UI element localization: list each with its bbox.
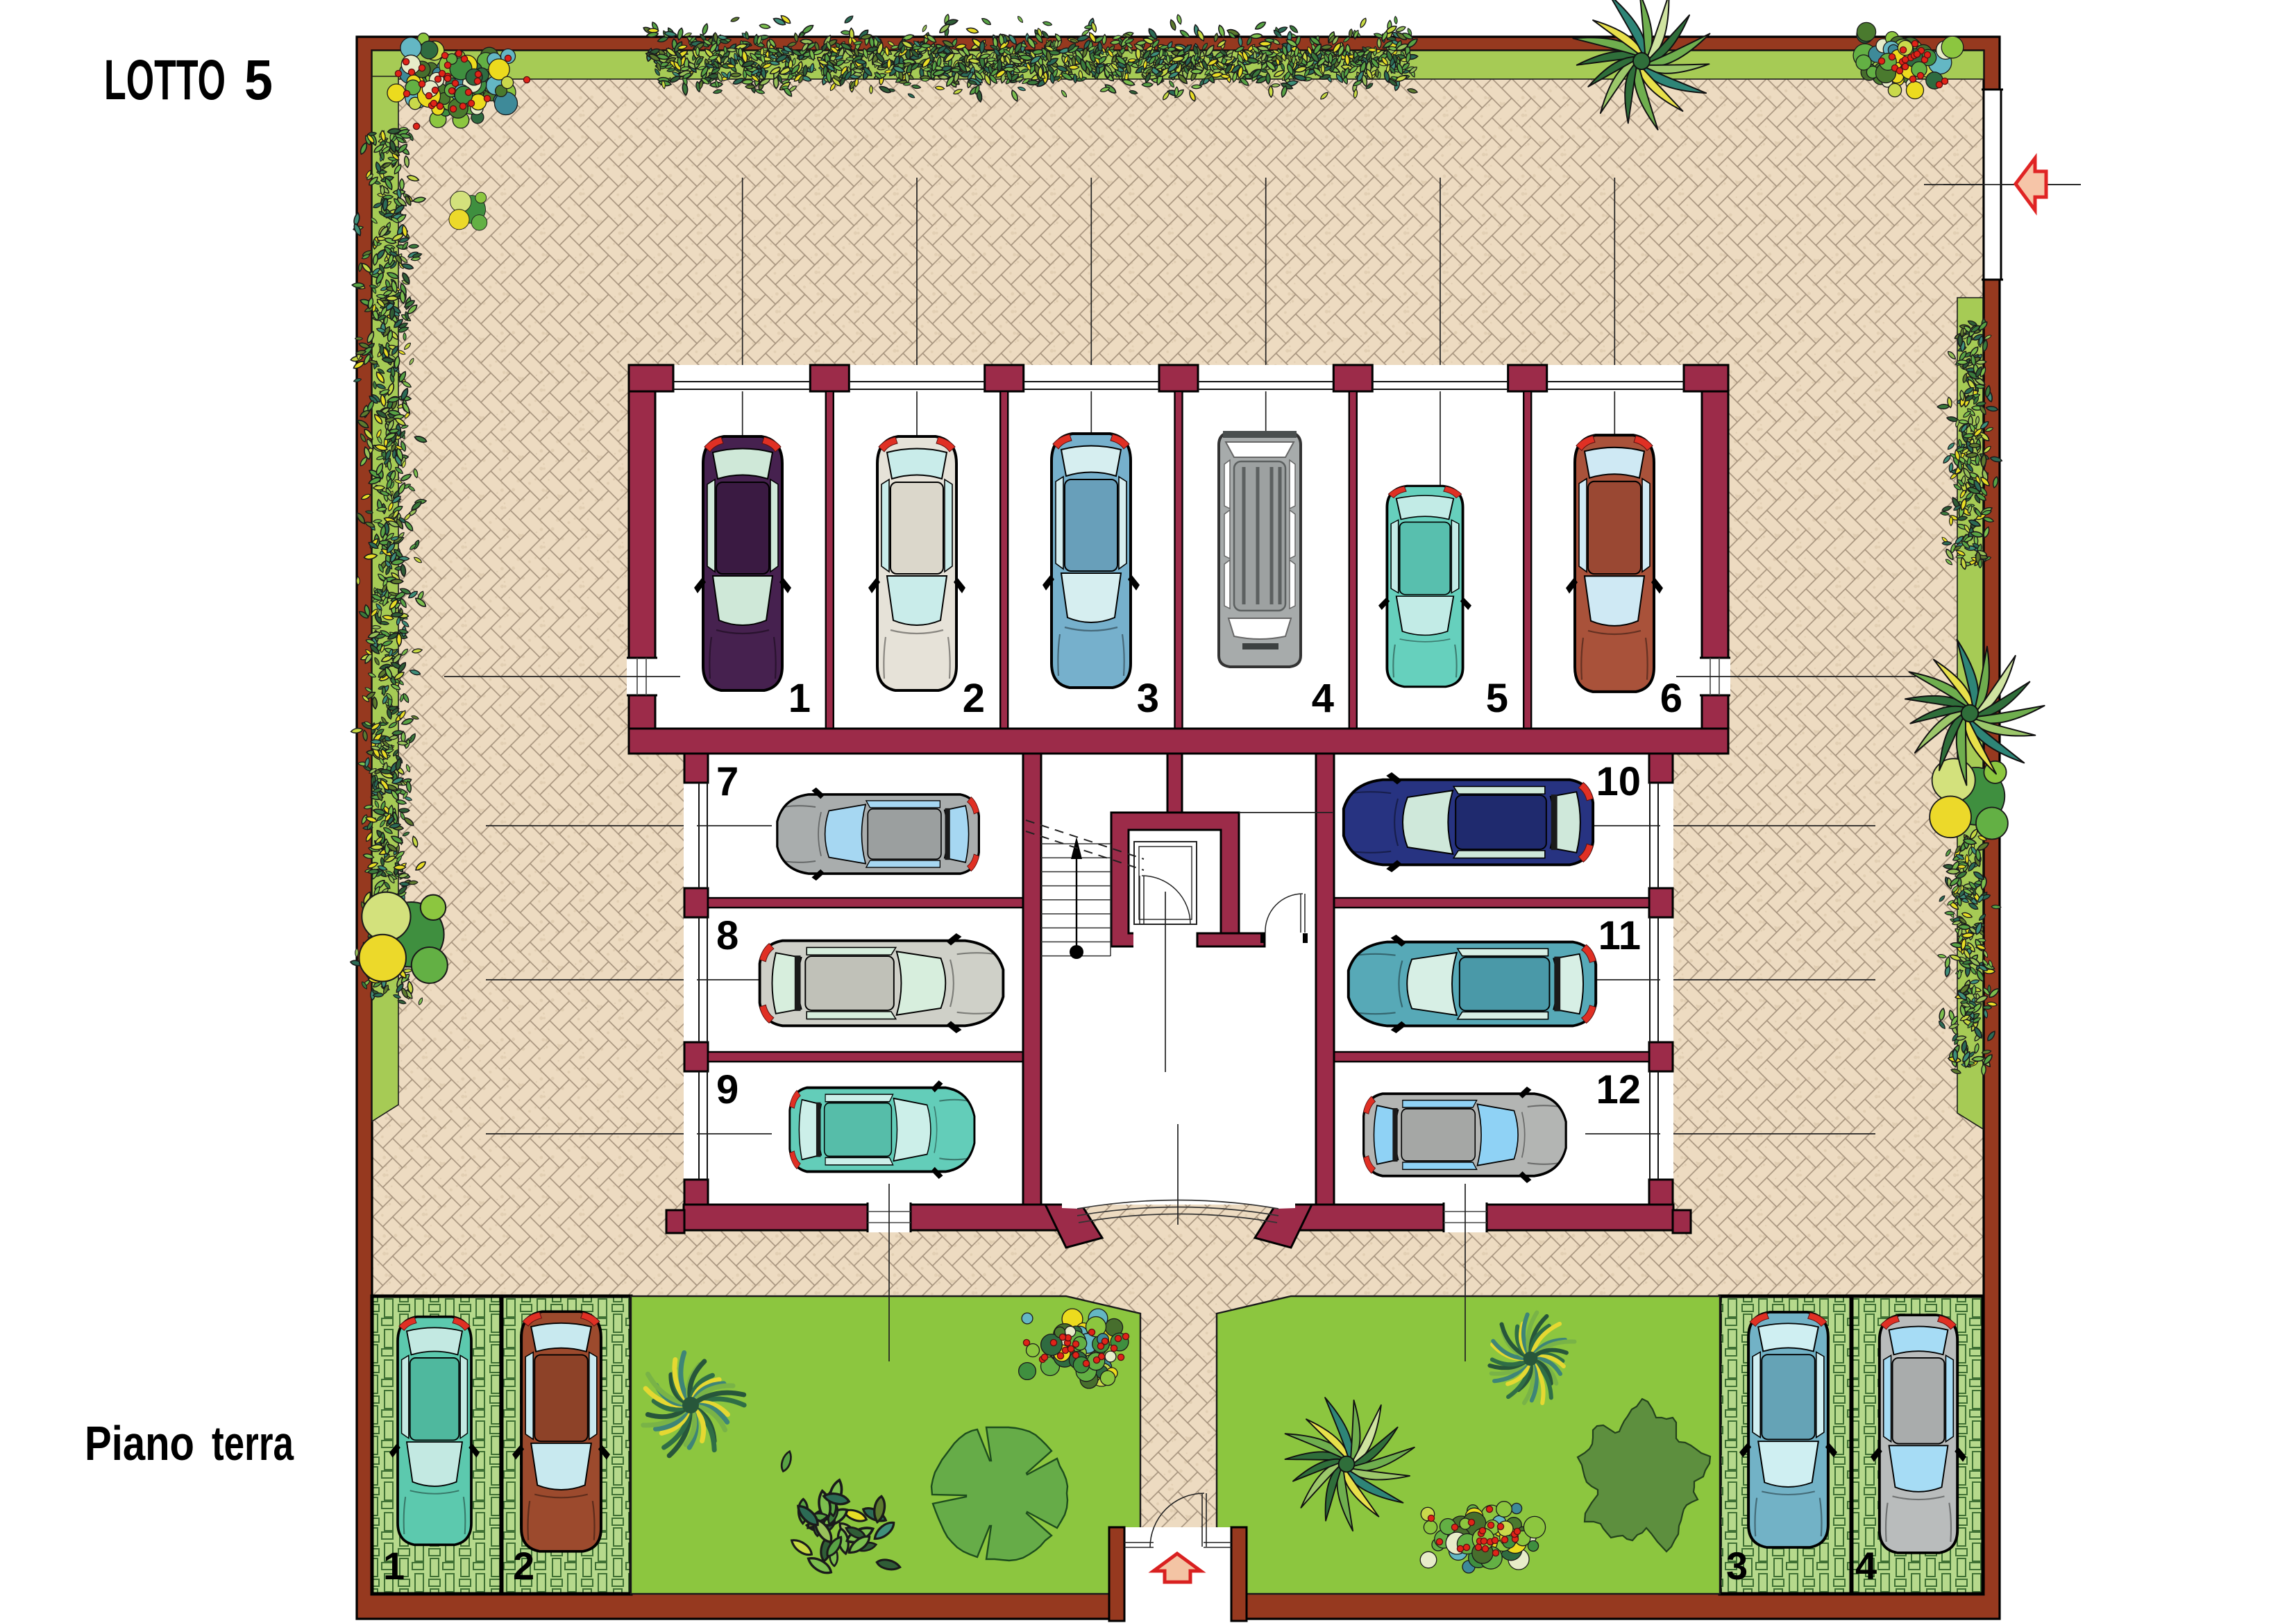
svg-text:1: 1 bbox=[383, 1544, 405, 1588]
svg-text:1: 1 bbox=[788, 676, 811, 721]
svg-text:11: 11 bbox=[1598, 913, 1641, 958]
svg-text:3: 3 bbox=[1726, 1544, 1748, 1588]
svg-text:LOTTO: LOTTO bbox=[104, 49, 226, 112]
svg-text:terra: terra bbox=[212, 1416, 294, 1470]
svg-text:Piano: Piano bbox=[85, 1416, 194, 1470]
svg-text:4: 4 bbox=[1855, 1544, 1877, 1588]
svg-text:9: 9 bbox=[716, 1067, 738, 1112]
svg-text:3: 3 bbox=[1137, 676, 1159, 721]
svg-text:6: 6 bbox=[1660, 676, 1682, 721]
svg-text:10: 10 bbox=[1596, 759, 1641, 804]
svg-text:7: 7 bbox=[716, 759, 738, 804]
svg-text:4: 4 bbox=[1312, 676, 1334, 721]
svg-text:8: 8 bbox=[716, 913, 738, 958]
svg-text:5: 5 bbox=[1486, 676, 1508, 721]
svg-text:12: 12 bbox=[1596, 1067, 1641, 1112]
svg-text:5: 5 bbox=[244, 49, 273, 112]
svg-text:2: 2 bbox=[963, 676, 985, 721]
svg-text:2: 2 bbox=[513, 1544, 534, 1588]
